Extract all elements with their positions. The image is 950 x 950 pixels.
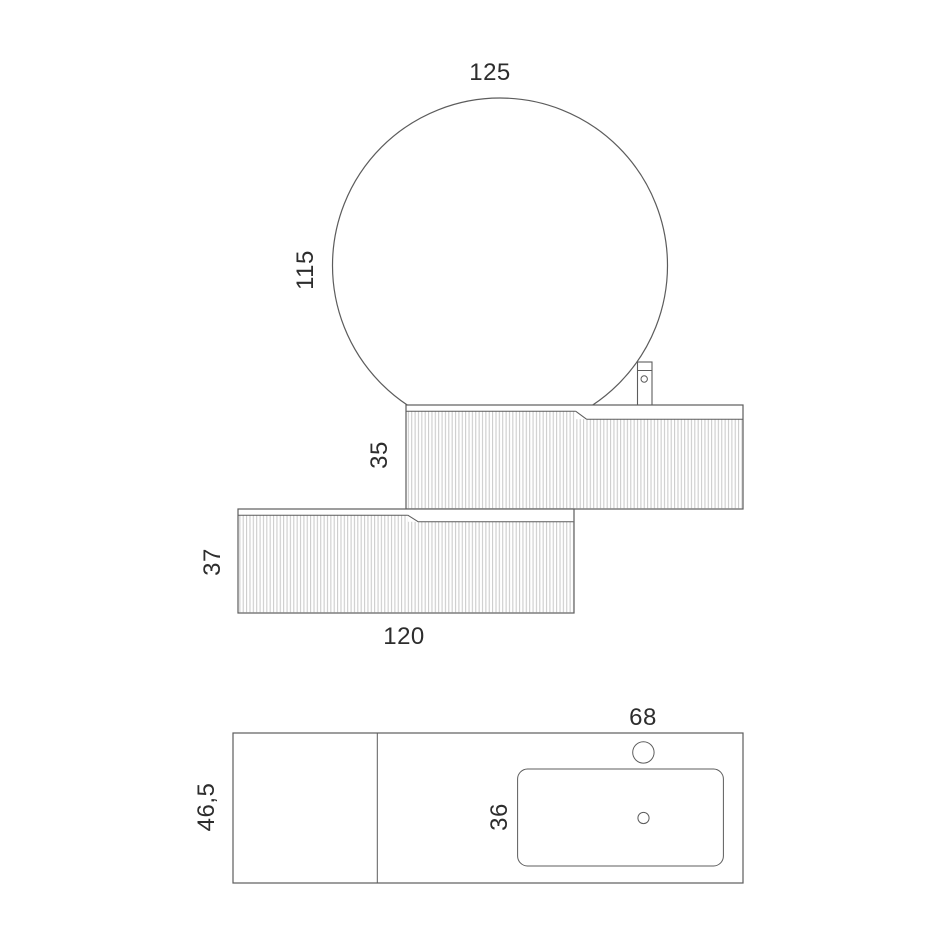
dim-drawer-cabinet-width: 120	[383, 623, 425, 651]
washbasin-cabinet-fluting-right	[576, 419, 743, 508]
washbasin-cabinet-front-view	[406, 405, 743, 509]
dim-basin-depth: 36	[486, 803, 514, 831]
dim-basin-section-width: 68	[629, 704, 657, 732]
mirror-circle	[333, 98, 668, 433]
technical-drawing-canvas: 125 115 35 37 120 46,5 36 68	[0, 0, 950, 950]
dim-basin-cabinet-height: 35	[366, 441, 394, 469]
washbasin-cabinet-fluting-left	[407, 411, 576, 508]
dim-countertop-depth: 46,5	[193, 783, 221, 832]
drawer-cabinet-fluting-left	[239, 515, 408, 612]
faucet-body	[638, 362, 653, 406]
vanity-drawing	[0, 0, 950, 950]
dim-mirror-height: 115	[292, 250, 320, 290]
dim-mirror-width: 125	[469, 59, 511, 87]
faucet-front-view	[638, 362, 653, 406]
dim-drawer-cabinet-height: 37	[199, 548, 227, 576]
drawer-cabinet-fluting-right	[408, 522, 574, 613]
drawer-cabinet-front-view	[238, 509, 574, 613]
